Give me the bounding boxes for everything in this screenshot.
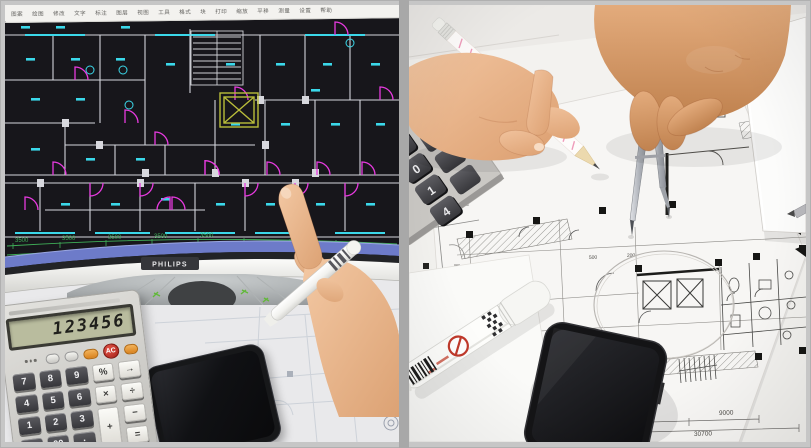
menu-item: 图案 [11,9,23,17]
knuckle-highlight [686,46,742,74]
calculator-key-5: 5 [41,391,65,411]
calculator: 123456 AC 7 8 9 % → 4 5 6 × ÷ 1 [5,289,160,442]
photo-collage: 3500 3500 3500 3500 3500 56900 7800 [0,0,811,448]
pointing-hand [233,127,399,417]
menu-item: 测量 [278,6,290,14]
menu-item: 缩放 [236,7,248,15]
philips-logo-plate: PHILIPS [141,257,199,270]
calculator-key-plus: + [97,406,123,442]
calculator-keypad: 7 8 9 % → 4 5 6 × ÷ 1 2 3 + − 0 00 · = [12,359,149,442]
calculator-key-0: 0 [20,438,44,442]
calculator-key-9: 9 [65,366,89,386]
calculator-key-3: 3 [70,409,94,429]
calculator-key-decimal: · [73,431,97,442]
calculator-key-equals: = [126,425,150,442]
menu-item: 修改 [53,9,65,17]
calculator-ac-key: AC [102,343,120,360]
pencil-tip-shadow [591,174,609,181]
cad-dim-text: 3500 [15,238,29,244]
calculator-key-4: 4 [15,394,39,414]
menu-item: 块 [200,7,206,15]
cad-dim-text: 3500 [154,234,168,240]
cad-dim-text: 3500 [200,233,214,239]
left-photo-cad-monitor: 3500 3500 3500 3500 3500 56900 7800 [5,5,399,442]
menu-item: 文字 [74,9,86,17]
menu-item: 图层 [116,8,128,16]
dim-text-9000: 9000 [719,409,734,417]
monitor-brand-text: PHILIPS [152,262,188,269]
calculator-function-key [45,352,60,364]
menu-item: 格式 [179,7,191,15]
calculator-key-correct: → [118,359,142,379]
calculator-function-key [64,350,79,362]
calculator-key-minus: − [123,403,147,423]
menu-item: 工具 [158,7,170,15]
right-photo-drafting: 3400 9000 30700 500 200 [409,5,806,442]
menu-item: 绘图 [32,9,44,17]
photo-divider [399,0,409,448]
cad-dim-text: 3500 [108,235,122,241]
menu-item: 设置 [299,6,311,14]
menu-item: 标注 [95,8,107,16]
calculator-key-6: 6 [68,388,92,408]
dim-text-500: 500 [589,255,598,261]
thumb-nail [534,143,544,151]
calculator-key-1: 1 [18,416,42,436]
calculator-key-multiply: × [94,384,118,404]
calculator-key-7: 7 [12,372,36,392]
calculator-function-key [123,343,138,355]
cad-dim-text: 3500 [62,236,76,242]
calculator-key-8: 8 [39,369,63,389]
menu-item: 帮助 [320,6,332,14]
calculator-speaker-dots [25,359,37,363]
calculator-function-key [83,348,98,360]
calculator-display-value: 123456 [51,311,126,340]
calculator-key-divide: ÷ [121,381,145,401]
menu-item: 视图 [137,8,149,16]
menu-item: 打印 [215,7,227,15]
stamp-circle [384,416,398,430]
calculator-key-2: 2 [44,413,68,433]
calculator-key-percent: % [92,362,116,382]
drafting-scene: 3400 9000 30700 500 200 [409,5,806,442]
dim-text-30700: 30700 [694,430,713,438]
calculator-key-00: 00 [47,434,71,442]
menu-item: 平移 [257,6,269,14]
